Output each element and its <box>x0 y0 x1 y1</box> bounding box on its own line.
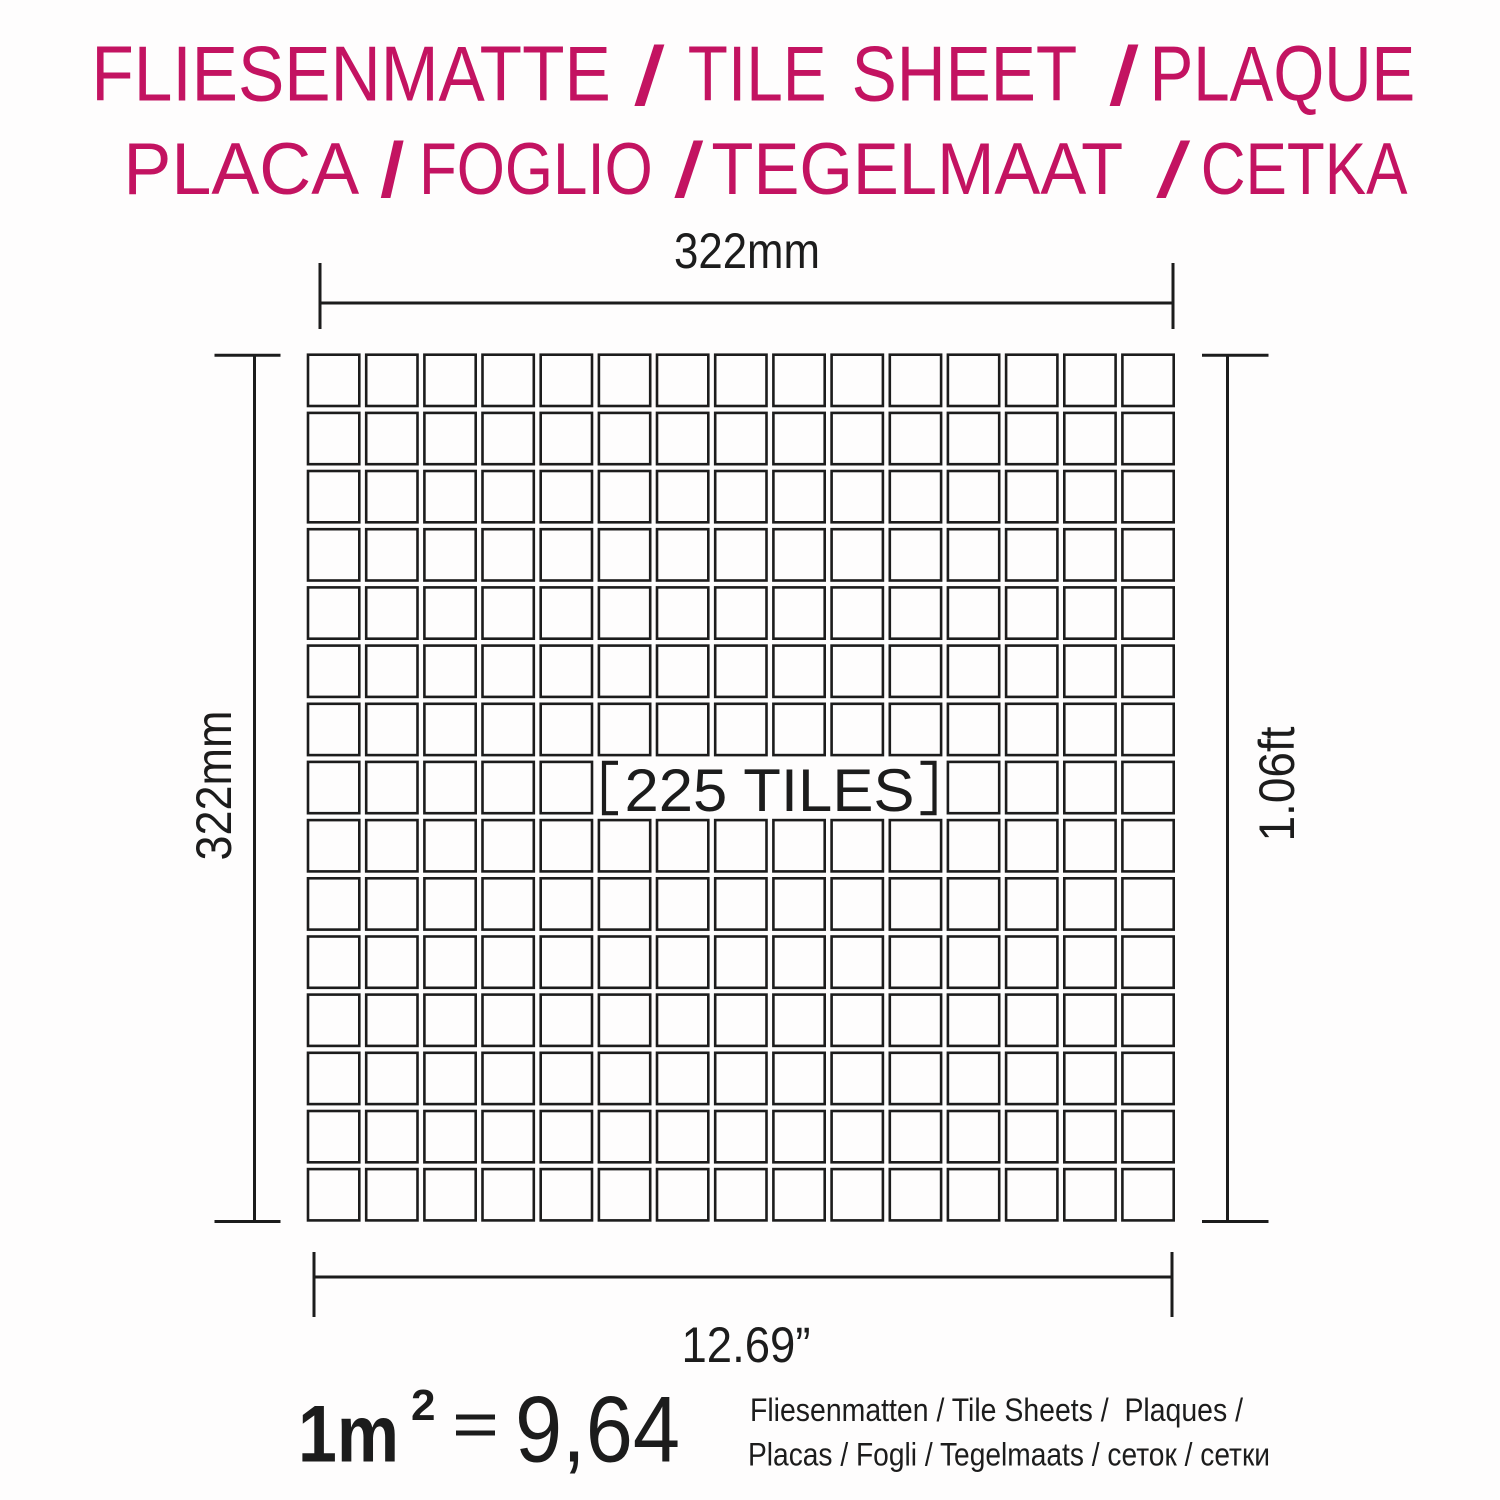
svg-text:PLACA: PLACA <box>123 129 359 210</box>
svg-text:225 TILES: 225 TILES <box>625 757 915 824</box>
svg-text:TILE: TILE <box>688 30 827 118</box>
svg-text:1.06ft: 1.06ft <box>1249 726 1305 841</box>
svg-text:Fliesenmatten / Tile Sheets /: Fliesenmatten / Tile Sheets / Plaques / <box>750 1392 1243 1428</box>
svg-text:FOGLIO: FOGLIO <box>419 129 653 210</box>
svg-text:CETKA: CETKA <box>1201 129 1408 210</box>
svg-text:9,64: 9,64 <box>515 1377 680 1482</box>
svg-text:FLIESENMATTE: FLIESENMATTE <box>91 30 610 118</box>
svg-text:PLAQUE: PLAQUE <box>1150 30 1416 118</box>
svg-text:322mm: 322mm <box>186 711 242 861</box>
svg-text:Placas / Fogli / Tegelmaats /: Placas / Fogli / Tegelmaats / сеток / се… <box>748 1437 1270 1473</box>
svg-text:12.69”: 12.69” <box>682 1317 811 1373</box>
svg-text:SHEET: SHEET <box>852 30 1078 118</box>
svg-text:2: 2 <box>411 1381 435 1430</box>
svg-text:TEGELMAAT: TEGELMAAT <box>711 129 1123 210</box>
svg-text:1m: 1m <box>298 1390 399 1480</box>
svg-text:322mm: 322mm <box>674 223 820 279</box>
